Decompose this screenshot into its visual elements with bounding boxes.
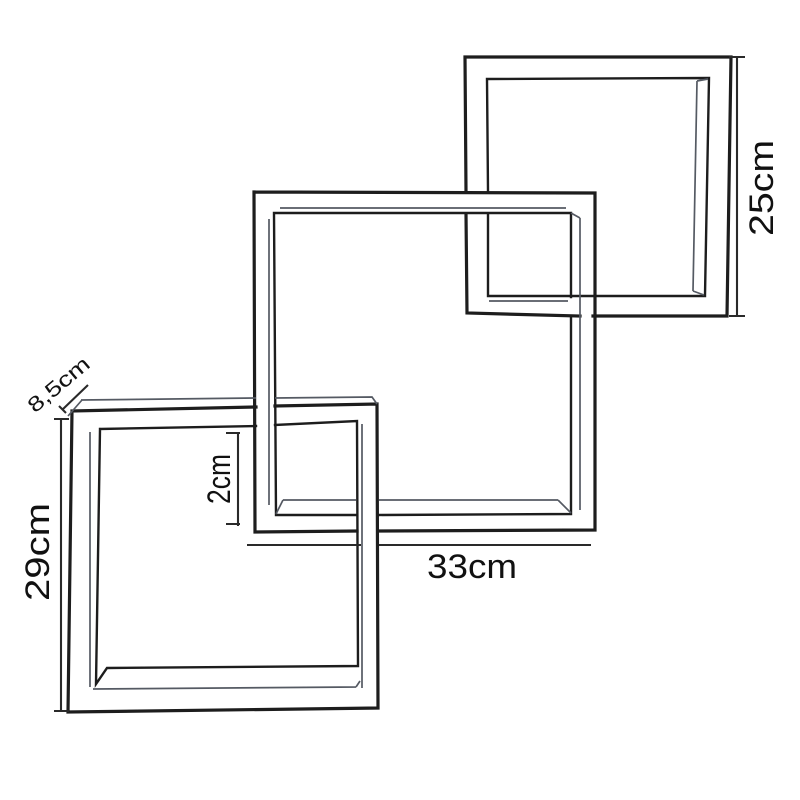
wall-shelf-technical-drawing: 25cm 29cm 33cm 2cm 8,5cm — [0, 0, 800, 800]
cube-frame-bottom-left — [68, 397, 378, 712]
frame-depth-edge — [489, 79, 708, 301]
dimension-top-right-height: 25cm — [729, 57, 781, 316]
dimension-board-thickness: 2cm — [201, 433, 240, 526]
dimension-middle-width: 33cm — [247, 545, 591, 586]
dimension-label: 25cm — [743, 140, 781, 236]
shelf-drawing-canvas: 25cm 29cm 33cm 2cm 8,5cm — [0, 0, 800, 800]
cube-frame-middle — [254, 192, 595, 532]
frame-depth-edge — [68, 397, 377, 689]
frame-outer-edge — [254, 192, 595, 532]
dimension-label: 33cm — [427, 548, 517, 586]
frame-outer-edge — [465, 57, 731, 316]
dimension-label: 8,5cm — [23, 352, 94, 417]
dimension-label: 29cm — [19, 503, 57, 601]
frame-inner-edge — [274, 213, 571, 515]
frame-depth-edge — [269, 208, 580, 514]
frame-inner-edge — [487, 78, 709, 296]
cube-frame-top-right — [465, 57, 731, 316]
dimension-bottom-left-height: 29cm — [19, 419, 69, 711]
dimension-label: 2cm — [201, 454, 237, 504]
dimension-depth: 8,5cm — [23, 352, 94, 417]
